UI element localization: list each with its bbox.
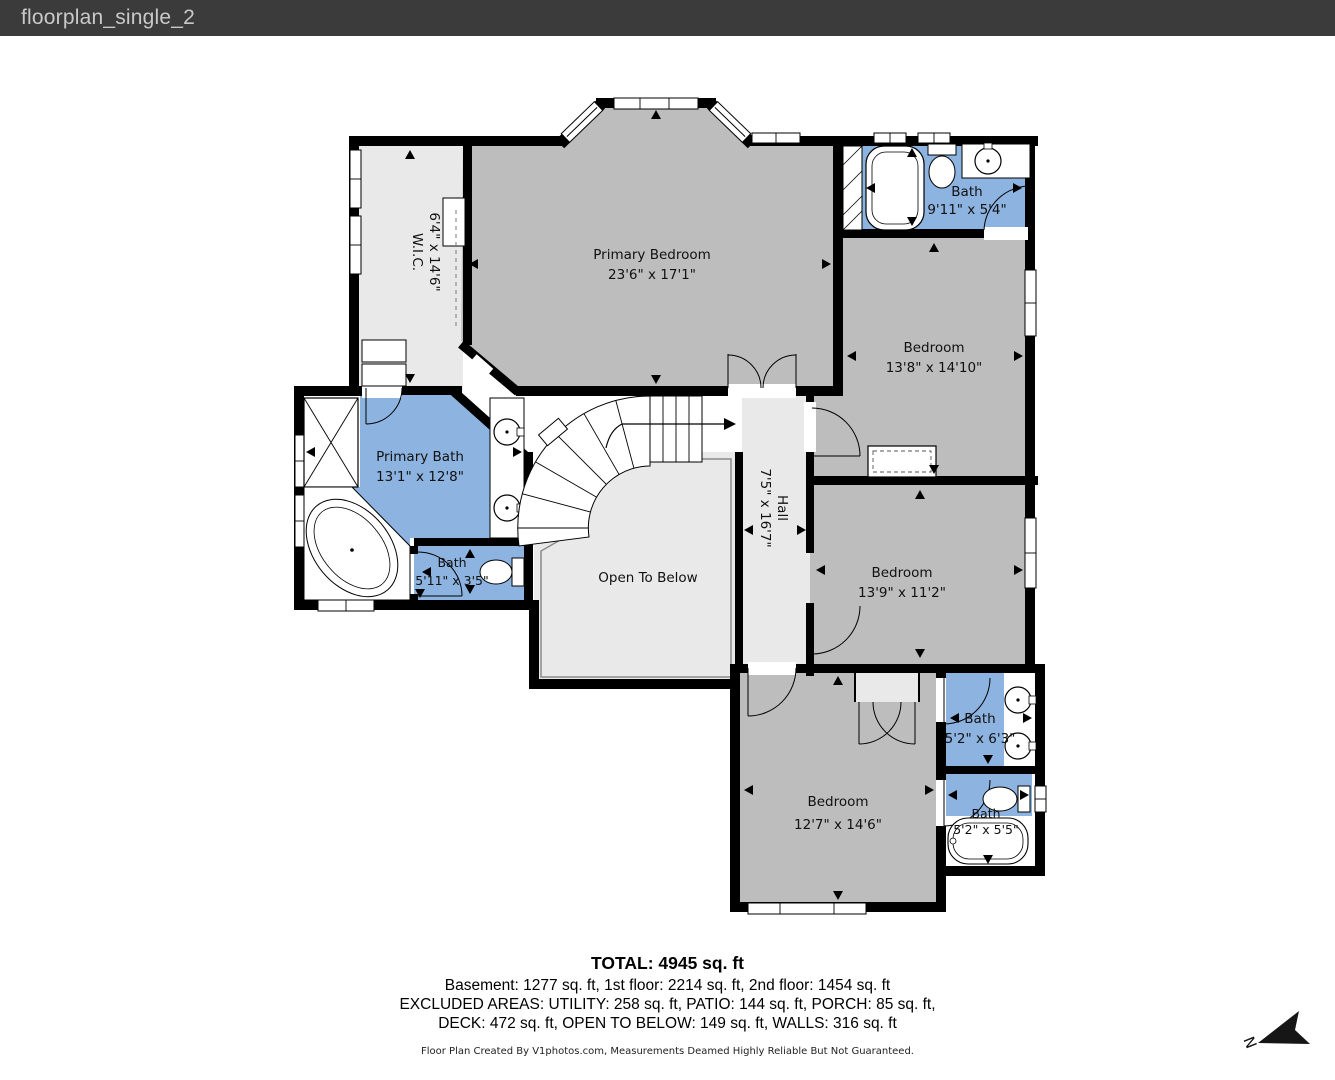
dims-primary-bedroom: 23'6" x 17'1" xyxy=(608,267,696,283)
toilet-icon xyxy=(928,144,956,155)
toilet-icon xyxy=(512,558,524,586)
excluded-areas-2: DECK: 472 sq. ft, OPEN TO BELOW: 149 sq.… xyxy=(0,1014,1335,1033)
label-bedroom-top-right: Bedroom xyxy=(903,340,964,356)
label-bedroom-bottom: Bedroom xyxy=(807,794,868,810)
dims-bedroom-bottom: 12'7" x 14'6" xyxy=(794,817,882,833)
stair-landing xyxy=(702,394,742,456)
floorplan-viewer: floorplan_single_2 xyxy=(0,0,1335,1080)
room-bedroom-top-right xyxy=(810,236,1035,481)
label-primary-bath: Primary Bath xyxy=(376,449,464,465)
label-bath-mid-right: Bath xyxy=(964,711,995,727)
label-bath-bottom-right: Bath xyxy=(971,806,1000,821)
dims-primary-bath: 13'1" x 12'8" xyxy=(376,469,464,485)
total-area: TOTAL: 4945 sq. ft xyxy=(0,953,1335,974)
north-arrow-icon: N xyxy=(1238,1002,1328,1057)
wic-closet-box xyxy=(362,364,406,386)
chase-hatch xyxy=(843,146,862,230)
excluded-areas-1: EXCLUDED AREAS: UTILITY: 258 sq. ft, PAT… xyxy=(0,995,1335,1014)
label-bath-small: Bath xyxy=(437,555,466,570)
label-open-to-below: Open To Below xyxy=(598,570,697,586)
label-wic: W.I.C. xyxy=(409,233,425,271)
toilet-icon xyxy=(1018,786,1030,812)
floor-areas: Basement: 1277 sq. ft, 1st floor: 2214 s… xyxy=(0,976,1335,995)
disclaimer-text: Floor Plan Created By V1photos.com, Meas… xyxy=(0,1046,1335,1057)
label-bedroom-mid-right: Bedroom xyxy=(871,565,932,581)
closet xyxy=(855,673,919,702)
dims-bath-bottom-right: 5'2" x 5'5" xyxy=(953,822,1019,837)
north-label: N xyxy=(1239,1034,1260,1051)
dims-bath-mid-right: 5'2" x 6'3" xyxy=(945,731,1016,747)
area-summary: TOTAL: 4945 sq. ft Basement: 1277 sq. ft… xyxy=(0,953,1335,1033)
dims-bedroom-mid-right: 13'9" x 11'2" xyxy=(858,585,946,601)
floorplan-drawing: Primary Bedroom 23'6" x 17'1" W.I.C. 6'4… xyxy=(0,0,1335,950)
room-bedroom-bottom xyxy=(740,672,941,908)
wic-shelf xyxy=(443,198,465,246)
label-bath-top: Bath xyxy=(951,184,982,200)
dims-wic: 6'4" x 14'6" xyxy=(426,212,442,291)
dims-bath-top: 9'11" x 5'4" xyxy=(927,202,1006,218)
label-hall: Hall xyxy=(774,495,790,521)
dims-bedroom-top-right: 13'8" x 14'10" xyxy=(886,360,983,376)
wic-closet-box xyxy=(362,340,406,362)
label-primary-bedroom: Primary Bedroom xyxy=(593,247,711,263)
dims-bath-small: 5'11" x 3'5" xyxy=(415,573,488,588)
dims-hall: 7'5" x 16'7" xyxy=(757,468,773,547)
